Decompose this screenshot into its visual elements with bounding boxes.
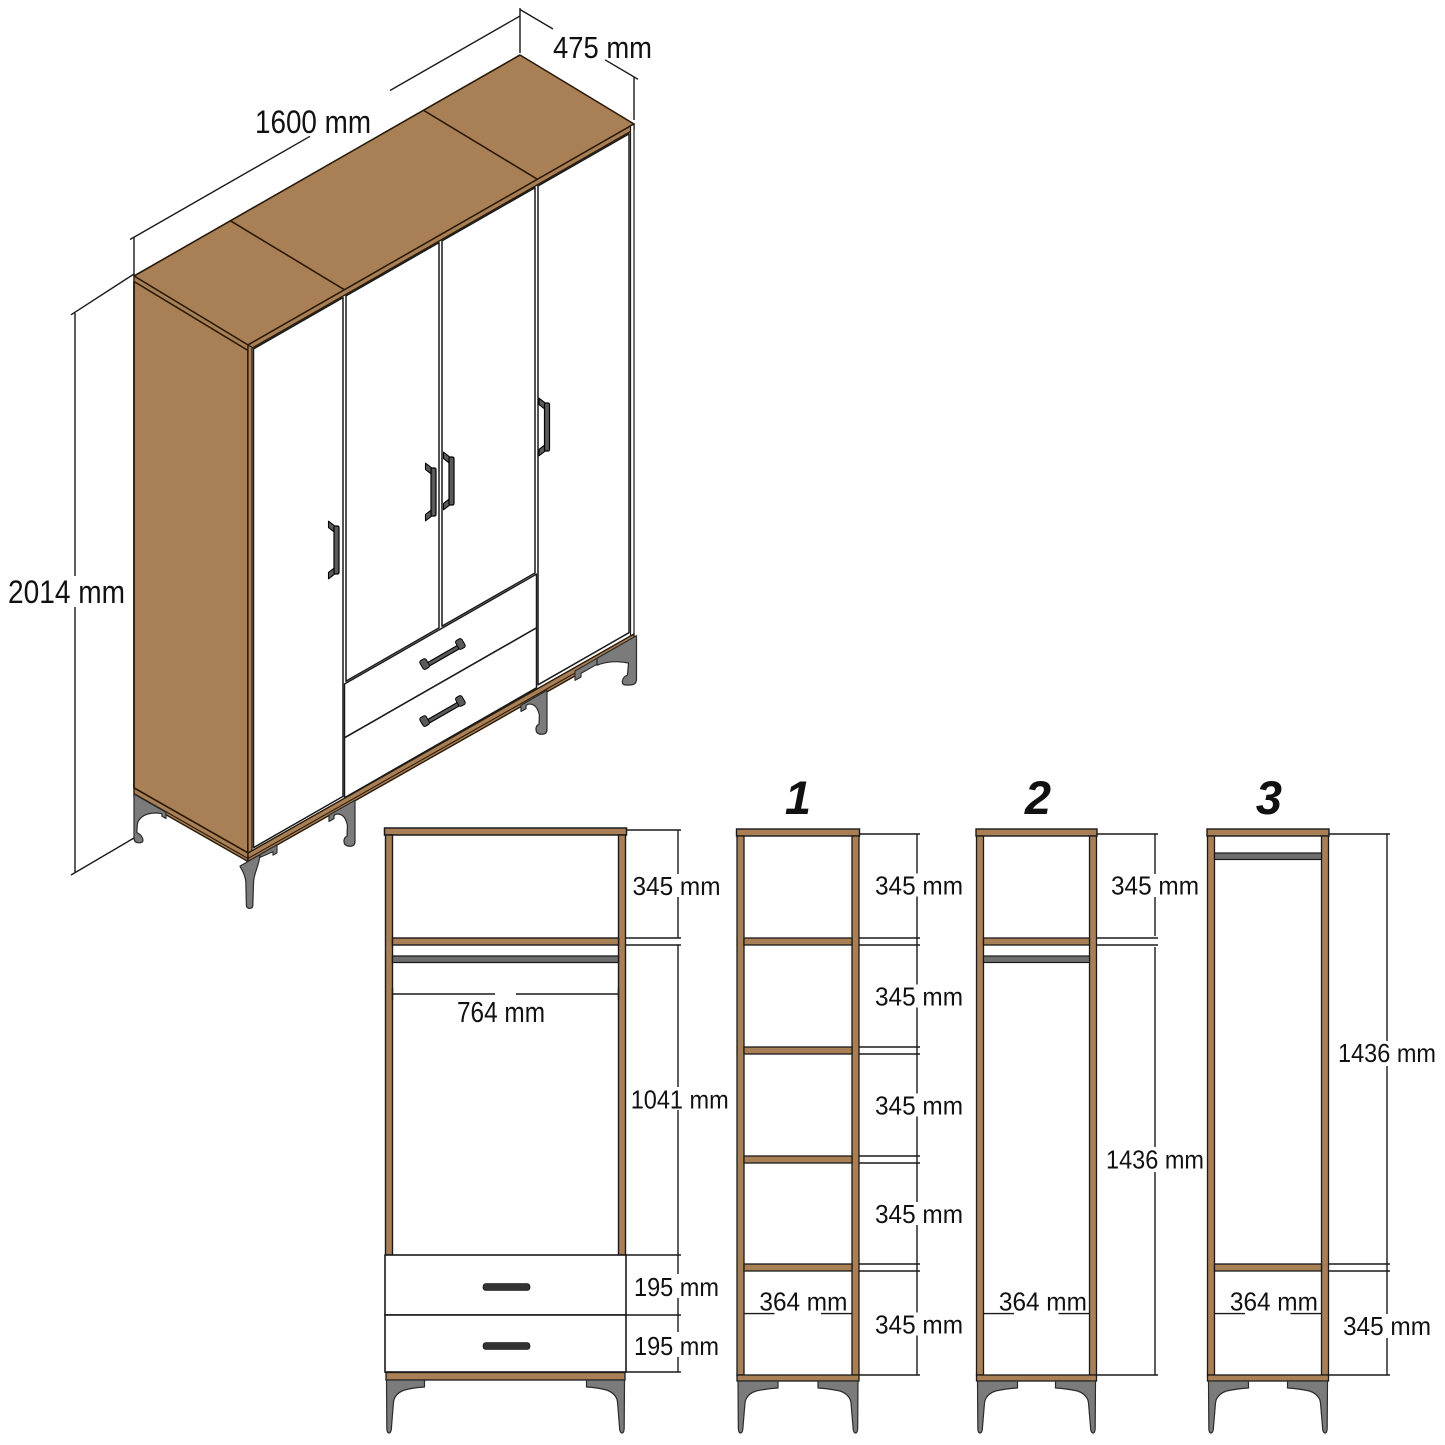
svg-text:2014 mm: 2014 mm [8,574,125,610]
svg-text:195 mm: 195 mm [634,1272,719,1302]
svg-text:764 mm: 764 mm [457,997,545,1029]
svg-text:364 mm: 364 mm [1230,1287,1318,1317]
svg-text:345 mm: 345 mm [875,1310,963,1340]
svg-text:1600 mm: 1600 mm [255,104,371,140]
svg-text:345 mm: 345 mm [1343,1311,1431,1341]
svg-text:345 mm: 345 mm [875,982,963,1012]
svg-text:345 mm: 345 mm [875,871,963,901]
svg-text:1436 mm: 1436 mm [1338,1038,1436,1068]
svg-text:345 mm: 345 mm [1111,871,1199,901]
svg-text:345 mm: 345 mm [875,1091,963,1121]
svg-text:475 mm: 475 mm [553,30,652,65]
svg-text:1: 1 [785,771,811,824]
svg-text:2: 2 [1024,771,1051,824]
svg-text:3: 3 [1256,771,1282,824]
svg-text:345 mm: 345 mm [633,871,721,901]
svg-text:1041 mm: 1041 mm [631,1085,729,1115]
svg-text:364 mm: 364 mm [759,1287,847,1317]
svg-text:195 mm: 195 mm [634,1331,719,1361]
svg-text:345 mm: 345 mm [875,1199,963,1229]
svg-text:364 mm: 364 mm [999,1287,1087,1317]
svg-text:1436 mm: 1436 mm [1106,1145,1204,1175]
